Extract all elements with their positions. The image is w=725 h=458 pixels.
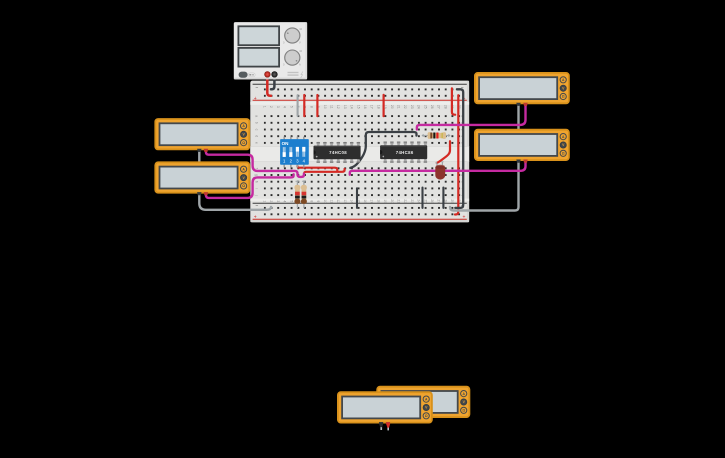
svg-text:22: 22 <box>403 199 407 203</box>
svg-text:13: 13 <box>343 105 347 109</box>
svg-text:3: 3 <box>276 106 280 108</box>
svg-text:23: 23 <box>410 105 414 109</box>
svg-text:3: 3 <box>276 200 280 202</box>
svg-text:12: 12 <box>336 105 340 109</box>
svg-text:17: 17 <box>370 199 374 203</box>
svg-text:V: V <box>299 41 301 45</box>
svg-text:h: h <box>255 181 259 183</box>
svg-text:21: 21 <box>397 199 401 203</box>
svg-text:20: 20 <box>390 105 394 109</box>
svg-text:−: − <box>255 203 258 209</box>
svg-text:5: 5 <box>289 106 293 108</box>
svg-text:+: + <box>254 214 257 220</box>
svg-text:Ω: Ω <box>562 152 565 156</box>
svg-text:24: 24 <box>417 105 421 109</box>
svg-text:8: 8 <box>309 200 313 202</box>
svg-text:d: d <box>255 135 259 137</box>
svg-text:18: 18 <box>376 199 380 203</box>
svg-text:9: 9 <box>316 200 320 202</box>
svg-text:Ω: Ω <box>425 414 428 418</box>
svg-text:24: 24 <box>417 199 421 203</box>
svg-text:4: 4 <box>283 200 287 202</box>
svg-text:Ω: Ω <box>462 409 465 413</box>
svg-text:26: 26 <box>430 199 434 203</box>
svg-text:Ω: Ω <box>242 184 245 188</box>
svg-text:+: + <box>462 214 465 220</box>
svg-text:27: 27 <box>437 199 441 203</box>
svg-text:f: f <box>255 168 259 169</box>
svg-text:j: j <box>255 194 259 196</box>
svg-text:11: 11 <box>330 200 334 204</box>
svg-text:b: b <box>255 122 259 124</box>
svg-text:Ω: Ω <box>242 141 245 145</box>
svg-text:12: 12 <box>336 199 340 203</box>
svg-text:74HC86: 74HC86 <box>396 150 414 155</box>
svg-text:28: 28 <box>443 105 447 109</box>
svg-text:22: 22 <box>403 105 407 109</box>
svg-text:g: g <box>255 174 259 176</box>
svg-text:29: 29 <box>450 199 454 203</box>
svg-text:2: 2 <box>269 200 273 202</box>
svg-text:14: 14 <box>350 199 354 203</box>
svg-text:14: 14 <box>350 105 354 109</box>
svg-text:13: 13 <box>343 199 347 203</box>
svg-text:27: 27 <box>437 105 441 109</box>
svg-text:25: 25 <box>423 199 427 203</box>
svg-text:26: 26 <box>430 105 434 109</box>
svg-text:a: a <box>255 115 259 117</box>
svg-text:8: 8 <box>309 106 313 108</box>
svg-text:+: + <box>254 96 257 102</box>
svg-text:5: 5 <box>289 200 293 202</box>
svg-text:e: e <box>255 142 259 144</box>
svg-text:16: 16 <box>363 105 367 109</box>
svg-text:2: 2 <box>269 106 273 108</box>
svg-text:23: 23 <box>410 199 414 203</box>
svg-text:18: 18 <box>376 105 380 109</box>
svg-text:10: 10 <box>323 199 327 203</box>
svg-text:15: 15 <box>356 105 360 109</box>
svg-text:25: 25 <box>423 105 427 109</box>
svg-text:17: 17 <box>370 105 374 109</box>
svg-text:4: 4 <box>283 106 287 108</box>
svg-text:−: − <box>255 85 258 91</box>
svg-text:11: 11 <box>330 105 334 109</box>
svg-text:c: c <box>255 129 259 131</box>
svg-text:16: 16 <box>363 199 367 203</box>
svg-text:A: A <box>299 63 301 67</box>
svg-text:74HC08: 74HC08 <box>329 150 347 155</box>
svg-text:1: 1 <box>263 106 267 108</box>
svg-text:10: 10 <box>323 105 327 109</box>
svg-text:21: 21 <box>397 105 401 109</box>
svg-text:ON: ON <box>282 141 290 146</box>
svg-text:1: 1 <box>263 200 267 202</box>
svg-text:Ω: Ω <box>562 95 565 99</box>
svg-text:20: 20 <box>390 199 394 203</box>
svg-text:19: 19 <box>383 199 387 203</box>
